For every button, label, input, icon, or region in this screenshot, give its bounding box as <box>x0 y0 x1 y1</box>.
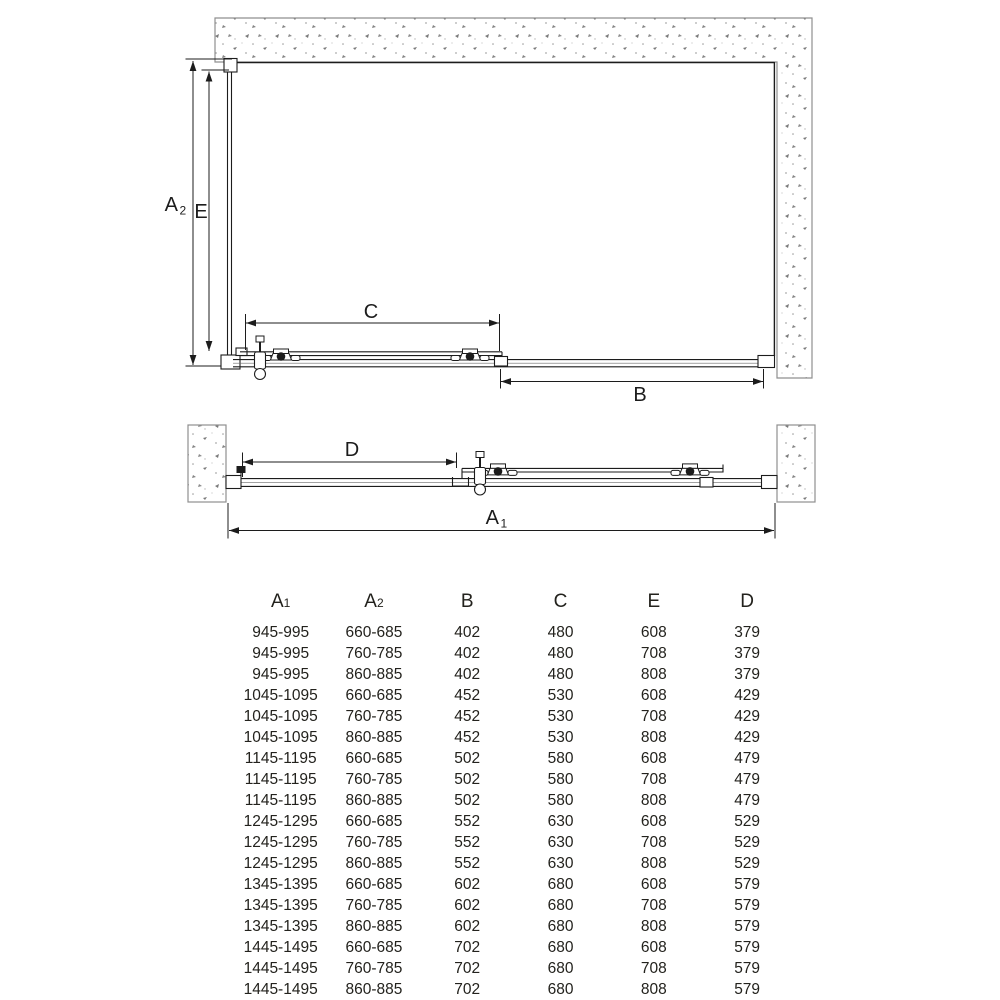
table-row: 1145-1195 660-685 502 580 608 479 <box>234 748 794 769</box>
wall-post-right <box>777 425 815 502</box>
cell-c: 530 <box>514 685 607 706</box>
cell-e: 608 <box>607 748 700 769</box>
cell-a1: 945-995 <box>234 664 327 685</box>
panel-stop-block <box>700 478 713 488</box>
table-row: 1045-1095 860-885 452 530 808 429 <box>234 727 794 748</box>
cell-c: 480 <box>514 643 607 664</box>
cell-e: 608 <box>607 622 700 643</box>
roller-carriage-icon <box>262 349 300 361</box>
cell-d: 579 <box>700 874 793 895</box>
cell-a2: 860-885 <box>327 664 420 685</box>
plan-view: A 2 E C B <box>165 18 812 406</box>
cell-e: 708 <box>607 769 700 790</box>
cell-a2: 660-685 <box>327 685 420 706</box>
cell-c: 530 <box>514 706 607 727</box>
cell-a1: 1245-1295 <box>234 832 327 853</box>
cell-c: 680 <box>514 979 607 1000</box>
cell-a1: 1345-1395 <box>234 895 327 916</box>
dimension-a1-subscript: 1 <box>501 517 508 531</box>
dimension-d-label: D <box>345 439 359 461</box>
header-subscript: 1 <box>284 596 291 610</box>
table-row: 1145-1195 760-785 502 580 708 479 <box>234 769 794 790</box>
shower-enclosure-spec-sheet: A 2 E C B <box>0 0 1000 1000</box>
cell-d: 479 <box>700 790 793 811</box>
cell-b: 402 <box>421 664 514 685</box>
cell-c: 680 <box>514 874 607 895</box>
header-base: A <box>271 591 284 612</box>
cell-c: 530 <box>514 727 607 748</box>
cell-b: 502 <box>421 790 514 811</box>
column-header-a2: A2 <box>327 588 420 617</box>
cell-c: 630 <box>514 853 607 874</box>
cell-e: 808 <box>607 790 700 811</box>
cell-d: 579 <box>700 979 793 1000</box>
column-header-d: D <box>700 588 793 617</box>
cell-d: 479 <box>700 769 793 790</box>
cell-b: 602 <box>421 874 514 895</box>
cell-a1: 1145-1195 <box>234 769 327 790</box>
cell-b: 452 <box>421 706 514 727</box>
cell-d: 529 <box>700 811 793 832</box>
cell-b: 552 <box>421 832 514 853</box>
cell-e: 708 <box>607 643 700 664</box>
cell-d: 579 <box>700 937 793 958</box>
cell-a1: 1445-1495 <box>234 958 327 979</box>
cell-d: 429 <box>700 727 793 748</box>
column-header-a1: A1 <box>234 588 327 617</box>
technical-drawing: A 2 E C B <box>0 0 1000 575</box>
table-row: 1045-1095 760-785 452 530 708 429 <box>234 706 794 727</box>
cell-a1: 1045-1095 <box>234 727 327 748</box>
dimension-e-label: E <box>194 201 207 223</box>
sliding-door-assembly <box>233 336 775 380</box>
cell-b: 702 <box>421 979 514 1000</box>
cell-e: 608 <box>607 937 700 958</box>
table-row: 1445-1495 760-785 702 680 708 579 <box>234 958 794 979</box>
cell-a1: 1145-1195 <box>234 748 327 769</box>
header-base: C <box>554 591 568 612</box>
table-row: 945-995 760-785 402 480 708 379 <box>234 643 794 664</box>
cell-c: 630 <box>514 811 607 832</box>
cell-d: 479 <box>700 748 793 769</box>
cell-d: 429 <box>700 685 793 706</box>
table-row: 1245-1295 860-885 552 630 808 529 <box>234 853 794 874</box>
enclosure-outline <box>233 62 774 356</box>
cell-a2: 860-885 <box>327 790 420 811</box>
cell-b: 552 <box>421 853 514 874</box>
fixed-side-glass-panel <box>221 59 247 370</box>
cell-e: 708 <box>607 958 700 979</box>
table-row: 1245-1295 760-785 552 630 708 529 <box>234 832 794 853</box>
dimension-a1-label: A <box>486 507 500 529</box>
cell-e: 808 <box>607 727 700 748</box>
cell-a2: 760-785 <box>327 958 420 979</box>
cell-a1: 1145-1195 <box>234 790 327 811</box>
cell-d: 579 <box>700 895 793 916</box>
cell-b: 502 <box>421 748 514 769</box>
dimension-d: D <box>243 439 457 477</box>
cell-e: 708 <box>607 895 700 916</box>
column-header-e: E <box>607 588 700 617</box>
header-subscript: 2 <box>377 596 384 610</box>
cell-b: 552 <box>421 811 514 832</box>
cell-c: 580 <box>514 748 607 769</box>
cell-e: 808 <box>607 916 700 937</box>
dimension-c-label: C <box>364 301 378 323</box>
cell-a2: 760-785 <box>327 643 420 664</box>
cell-d: 529 <box>700 832 793 853</box>
rail-end-bracket-left <box>226 476 241 489</box>
wall-end-bracket <box>758 356 775 368</box>
cell-b: 402 <box>421 622 514 643</box>
door-handle-icon <box>475 452 486 496</box>
table-row: 1145-1195 860-885 502 580 808 479 <box>234 790 794 811</box>
cell-a1: 945-995 <box>234 643 327 664</box>
cell-a2: 760-785 <box>327 769 420 790</box>
table-row: 1245-1295 660-685 552 630 608 529 <box>234 811 794 832</box>
cell-a2: 860-885 <box>327 727 420 748</box>
roller-carriage-icon <box>451 349 489 361</box>
header-base: A <box>364 591 377 612</box>
cell-c: 680 <box>514 937 607 958</box>
cell-a2: 660-685 <box>327 748 420 769</box>
cell-a1: 1245-1295 <box>234 853 327 874</box>
column-header-b: B <box>421 588 514 617</box>
dimension-c: C <box>246 301 500 351</box>
cell-d: 379 <box>700 622 793 643</box>
dimension-table-header: A1 A2 B C E D <box>234 588 794 616</box>
cell-a2: 760-785 <box>327 832 420 853</box>
dimension-b: B <box>501 369 764 406</box>
cell-a1: 1445-1495 <box>234 937 327 958</box>
table-row: 1045-1095 660-685 452 530 608 429 <box>234 685 794 706</box>
cell-e: 608 <box>607 874 700 895</box>
cell-d: 579 <box>700 916 793 937</box>
cell-e: 808 <box>607 979 700 1000</box>
cell-a2: 660-685 <box>327 937 420 958</box>
header-base: B <box>461 591 474 612</box>
cell-b: 702 <box>421 937 514 958</box>
cell-d: 379 <box>700 664 793 685</box>
cell-a1: 1045-1095 <box>234 685 327 706</box>
rail-end-bracket-right <box>762 476 778 489</box>
cell-d: 379 <box>700 643 793 664</box>
cell-a1: 945-995 <box>234 622 327 643</box>
dimension-table: A1 A2 B C E D 945-995 660-685 402 480 60… <box>234 588 794 1000</box>
table-row: 1445-1495 860-885 702 680 808 579 <box>234 979 794 1000</box>
door-handle-icon <box>255 336 266 380</box>
dimension-a2-label: A <box>165 194 179 216</box>
cell-e: 708 <box>607 832 700 853</box>
dimension-e: E <box>194 70 229 351</box>
cell-c: 480 <box>514 664 607 685</box>
roller-carriage-icon <box>671 464 709 476</box>
cell-b: 602 <box>421 916 514 937</box>
cell-c: 630 <box>514 832 607 853</box>
table-row: 945-995 660-685 402 480 608 379 <box>234 622 794 643</box>
cell-d: 579 <box>700 958 793 979</box>
panel-joint-bracket <box>495 357 508 367</box>
cell-e: 808 <box>607 853 700 874</box>
dimension-b-label: B <box>633 384 646 406</box>
cell-a1: 1045-1095 <box>234 706 327 727</box>
header-base: D <box>740 591 754 612</box>
column-header-c: C <box>514 588 607 617</box>
cell-b: 402 <box>421 643 514 664</box>
cell-e: 608 <box>607 811 700 832</box>
cell-a1: 1245-1295 <box>234 811 327 832</box>
cell-a2: 860-885 <box>327 853 420 874</box>
cell-c: 580 <box>514 769 607 790</box>
wall-profile-fitting <box>237 466 246 473</box>
dimension-table-body: 945-995 660-685 402 480 608 379 945-995 … <box>234 622 794 1000</box>
wall-top-and-right <box>215 18 812 378</box>
table-row: 945-995 860-885 402 480 808 379 <box>234 664 794 685</box>
cell-a2: 660-685 <box>327 874 420 895</box>
wall-post-left <box>188 425 226 502</box>
table-row: 1345-1395 860-885 602 680 808 579 <box>234 916 794 937</box>
cell-c: 680 <box>514 916 607 937</box>
cell-a2: 860-885 <box>327 916 420 937</box>
cell-c: 680 <box>514 895 607 916</box>
cell-b: 702 <box>421 958 514 979</box>
cell-c: 480 <box>514 622 607 643</box>
cell-b: 502 <box>421 769 514 790</box>
cell-e: 608 <box>607 685 700 706</box>
width-profile-view: D A 1 <box>188 425 815 539</box>
table-row: 1345-1395 760-785 602 680 708 579 <box>234 895 794 916</box>
cell-b: 452 <box>421 685 514 706</box>
cell-a2: 860-885 <box>327 979 420 1000</box>
cell-b: 452 <box>421 727 514 748</box>
cell-a2: 760-785 <box>327 895 420 916</box>
cell-b: 602 <box>421 895 514 916</box>
cell-d: 529 <box>700 853 793 874</box>
cell-a2: 660-685 <box>327 622 420 643</box>
cell-e: 708 <box>607 706 700 727</box>
sliding-panel <box>453 452 724 496</box>
cell-c: 580 <box>514 790 607 811</box>
cell-d: 429 <box>700 706 793 727</box>
cell-a1: 1345-1395 <box>234 916 327 937</box>
cell-a2: 760-785 <box>327 706 420 727</box>
cell-a1: 1445-1495 <box>234 979 327 1000</box>
table-row: 1445-1495 660-685 702 680 608 579 <box>234 937 794 958</box>
header-base: E <box>647 591 660 612</box>
cell-a1: 1345-1395 <box>234 874 327 895</box>
cell-a2: 660-685 <box>327 811 420 832</box>
dimension-a2-subscript: 2 <box>180 204 187 218</box>
cell-e: 808 <box>607 664 700 685</box>
cell-c: 680 <box>514 958 607 979</box>
table-row: 1345-1395 660-685 602 680 608 579 <box>234 874 794 895</box>
dimension-a1: A 1 <box>228 503 775 539</box>
